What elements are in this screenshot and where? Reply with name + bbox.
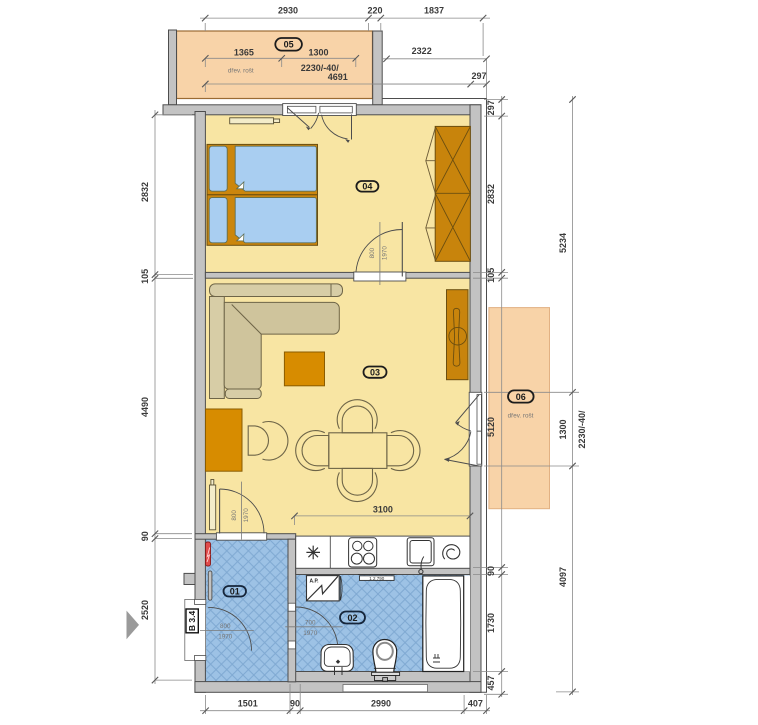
svg-text:1730: 1730 (486, 613, 496, 633)
svg-text:06: 06 (516, 392, 526, 402)
svg-text:A.P.: A.P. (309, 579, 319, 585)
svg-text:5120: 5120 (486, 417, 496, 437)
svg-text:05: 05 (284, 40, 294, 50)
svg-text:457: 457 (486, 675, 496, 690)
svg-text:04: 04 (362, 182, 372, 192)
svg-text:800: 800 (231, 510, 238, 521)
svg-text:1837: 1837 (424, 6, 444, 16)
svg-text:700: 700 (305, 620, 316, 627)
svg-text:02: 02 (347, 613, 357, 623)
svg-text:2322: 2322 (412, 46, 432, 56)
svg-text:800: 800 (220, 623, 231, 630)
svg-text:3100: 3100 (373, 504, 393, 514)
svg-text:800: 800 (369, 247, 376, 258)
svg-text:dřev. rošt: dřev. rošt (508, 413, 534, 420)
svg-text:407: 407 (468, 699, 483, 709)
svg-text:1300: 1300 (308, 48, 328, 58)
svg-text:03: 03 (370, 368, 380, 378)
svg-text:90: 90 (140, 531, 150, 541)
svg-text:2520: 2520 (140, 600, 150, 620)
svg-text:1970: 1970 (243, 508, 250, 523)
svg-text:1970: 1970 (381, 246, 388, 261)
svg-text:1970: 1970 (218, 634, 233, 641)
svg-text:dřev. rošt: dřev. rošt (228, 68, 254, 75)
svg-text:1 2 790: 1 2 790 (369, 576, 385, 581)
svg-text:1300: 1300 (558, 419, 568, 439)
svg-text:4490: 4490 (140, 397, 150, 417)
svg-text:01: 01 (230, 587, 240, 597)
svg-text:90: 90 (486, 566, 496, 576)
svg-text:2832: 2832 (140, 182, 150, 202)
svg-text:1970: 1970 (303, 630, 318, 637)
svg-text:90: 90 (290, 699, 300, 709)
svg-text:1365: 1365 (234, 48, 254, 58)
svg-text:220: 220 (367, 6, 382, 16)
svg-text:B 3.4: B 3.4 (187, 610, 197, 631)
svg-text:4691: 4691 (328, 72, 348, 82)
svg-text:1501: 1501 (238, 699, 258, 709)
svg-text:5234: 5234 (558, 233, 568, 253)
svg-text:297: 297 (486, 100, 496, 115)
svg-text:2230/-40/: 2230/-40/ (577, 410, 587, 449)
svg-text:2990: 2990 (371, 699, 391, 709)
svg-text:4097: 4097 (558, 567, 568, 587)
svg-text:297: 297 (471, 71, 486, 81)
svg-text:2930: 2930 (278, 6, 298, 16)
svg-text:105: 105 (486, 268, 496, 283)
svg-text:105: 105 (140, 269, 150, 284)
svg-text:2832: 2832 (486, 184, 496, 204)
